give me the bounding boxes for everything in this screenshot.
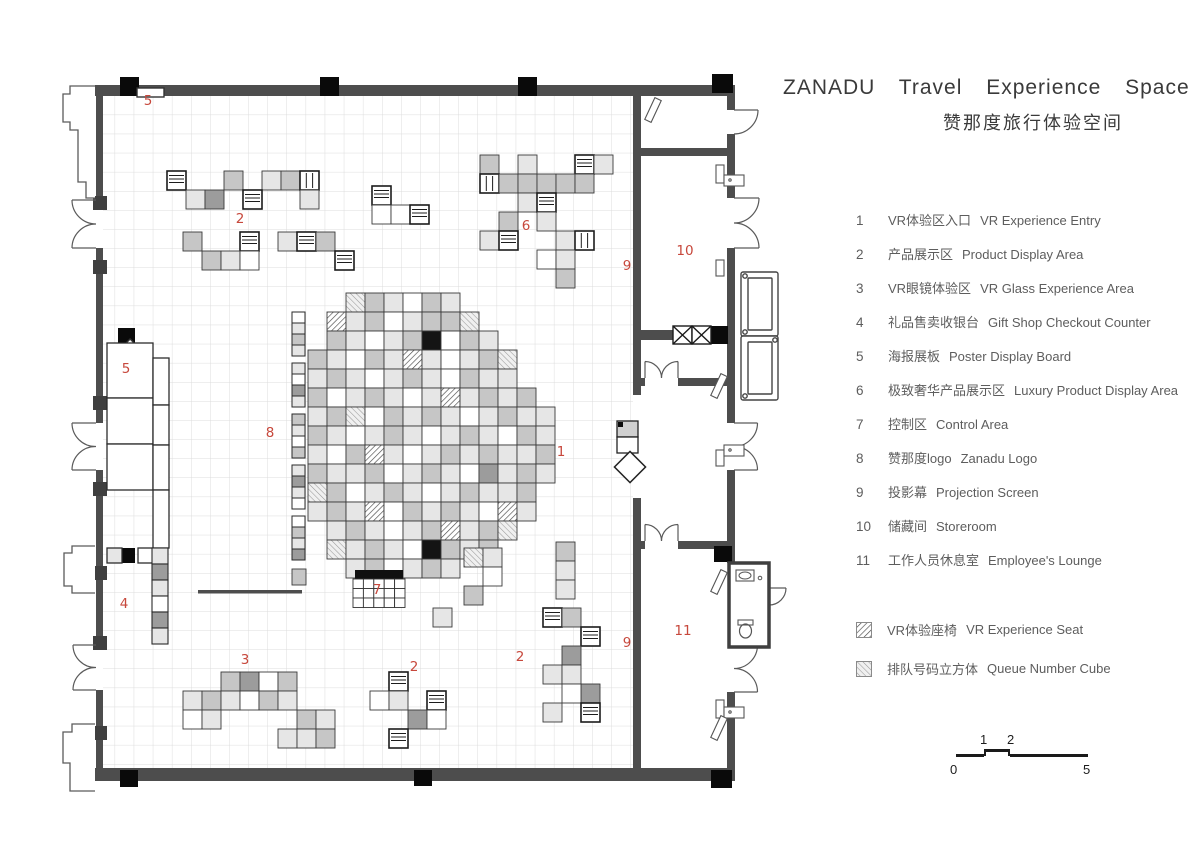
legend-label-en: Storeroom	[936, 512, 997, 542]
plan-label-4: 4	[120, 596, 129, 612]
scale-segment	[956, 754, 984, 757]
queue-rail	[198, 590, 302, 594]
entry-desk	[617, 421, 638, 453]
legend-item-6: 6极致奢华产品展示区Luxury Product Display Area	[856, 376, 1200, 410]
legend-label-zh: 赞那度logo	[888, 444, 952, 474]
legend-number: 5	[856, 342, 876, 372]
plan-label-3: 3	[241, 652, 250, 668]
legend-number: 9	[856, 478, 876, 508]
plan-label-8: 8	[266, 425, 275, 441]
legend-label-en: VR Experience Entry	[980, 206, 1101, 236]
page-title-chinese: 赞那度旅行体验空间	[783, 109, 1123, 135]
floor-plan: 52691058174911322	[0, 0, 810, 848]
legend-number: 10	[856, 512, 876, 542]
legend-item-2: 2产品展示区Product Display Area	[856, 240, 1200, 274]
legend: 1VR体验区入口VR Experience Entry2产品展示区Product…	[856, 206, 1200, 688]
legend-number: 2	[856, 240, 876, 270]
plan-label-5: 5	[144, 93, 153, 109]
plan-label-6: 6	[522, 218, 531, 234]
legend-list: 1VR体验区入口VR Experience Entry2产品展示区Product…	[856, 206, 1200, 580]
plan-label-9: 9	[623, 635, 632, 651]
legend-item-11: 11工作人员休息室Employee's Lounge	[856, 546, 1200, 580]
legend-item-3: 3VR眼镜体验区VR Glass Experience Area	[856, 274, 1200, 308]
texture-item-hatch-seat: VR体验座椅VR Experience Seat	[856, 610, 1200, 649]
scale-label-1: 1	[980, 732, 987, 747]
legend-item-7: 7控制区Control Area	[856, 410, 1200, 444]
scale-label-0: 0	[950, 762, 957, 777]
legend-label-en: Product Display Area	[962, 240, 1083, 270]
legend-item-4: 4礼品售卖收银台Gift Shop Checkout Counter	[856, 308, 1200, 342]
scale-bar: 1 2 0 5	[948, 732, 1098, 782]
legend-label-en: Luxury Product Display Area	[1014, 376, 1178, 406]
legend-label-en: Employee's Lounge	[988, 546, 1102, 576]
title-block: ZANADU Travel Experience Space 赞那度旅行体验空间	[783, 76, 1123, 135]
plan-label-2: 2	[410, 659, 419, 675]
legend-number: 3	[856, 274, 876, 304]
facade-pilasters	[63, 86, 95, 791]
legend-item-5: 5海报展板Poster Display Board	[856, 342, 1200, 376]
texture-item-hatch-queue: 排队号码立方体Queue Number Cube	[856, 649, 1200, 688]
legend-item-1: 1VR体验区入口VR Experience Entry	[856, 206, 1200, 240]
legend-label-zh: VR体验区入口	[888, 206, 971, 236]
legend-label-en: Projection Screen	[936, 478, 1039, 508]
scale-label-5: 5	[1083, 762, 1090, 777]
zanadu-logo-strip	[292, 312, 306, 585]
floorplan-sheet: 52691058174911322 ZANADU Travel Experien…	[0, 0, 1200, 848]
exterior-cabinets	[741, 272, 778, 400]
legend-number: 11	[856, 546, 876, 576]
legend-number: 1	[856, 206, 876, 236]
plan-label-5: 5	[122, 361, 131, 377]
legend-label-zh: 海报展板	[888, 342, 940, 372]
hatch-queue-icon	[856, 661, 872, 677]
texture-label-zh: 排队号码立方体	[887, 659, 978, 678]
hatch-seat-icon	[856, 622, 872, 638]
plan-label-9: 9	[623, 258, 632, 274]
legend-label-zh: 工作人员休息室	[888, 546, 979, 576]
plan-label-1: 1	[557, 444, 566, 460]
legend-label-zh: 储藏间	[888, 512, 927, 542]
legend-item-9: 9投影幕Projection Screen	[856, 478, 1200, 512]
legend-item-8: 8赞那度logoZanadu Logo	[856, 444, 1200, 478]
scale-segment-raised	[984, 749, 1010, 752]
legend-label-en: VR Glass Experience Area	[980, 274, 1134, 304]
plan-label-10: 10	[676, 243, 693, 259]
legend-label-en: Control Area	[936, 410, 1008, 440]
plan-label-2: 2	[236, 211, 245, 227]
shaft-xboxes	[673, 326, 711, 344]
texture-label-en: VR Experience Seat	[966, 622, 1083, 637]
plan-label-2: 2	[516, 649, 525, 665]
scale-segment	[1010, 754, 1088, 757]
legend-label-zh: 产品展示区	[888, 240, 953, 270]
legend-label-en: Gift Shop Checkout Counter	[988, 308, 1151, 338]
texture-label-en: Queue Number Cube	[987, 661, 1111, 676]
scale-label-2: 2	[1007, 732, 1014, 747]
legend-item-10: 10储藏间Storeroom	[856, 512, 1200, 546]
legend-number: 4	[856, 308, 876, 338]
legend-label-zh: 控制区	[888, 410, 927, 440]
legend-number: 6	[856, 376, 876, 406]
bathroom	[729, 563, 769, 647]
legend-label-zh: 投影幕	[888, 478, 927, 508]
legend-label-zh: 极致奢华产品展示区	[888, 376, 1005, 406]
legend-label-en: Zanadu Logo	[961, 444, 1038, 474]
texture-legend: VR体验座椅VR Experience Seat排队号码立方体Queue Num…	[856, 610, 1200, 688]
scale-tick	[984, 749, 986, 756]
legend-number: 8	[856, 444, 876, 474]
plan-label-7: 7	[373, 582, 382, 598]
page-title: ZANADU Travel Experience Space	[783, 76, 1123, 100]
legend-label-zh: VR眼镜体验区	[888, 274, 971, 304]
plan-label-11: 11	[674, 623, 691, 639]
texture-label-zh: VR体验座椅	[887, 620, 957, 639]
legend-number: 7	[856, 410, 876, 440]
legend-label-en: Poster Display Board	[949, 342, 1071, 372]
legend-label-zh: 礼品售卖收银台	[888, 308, 979, 338]
